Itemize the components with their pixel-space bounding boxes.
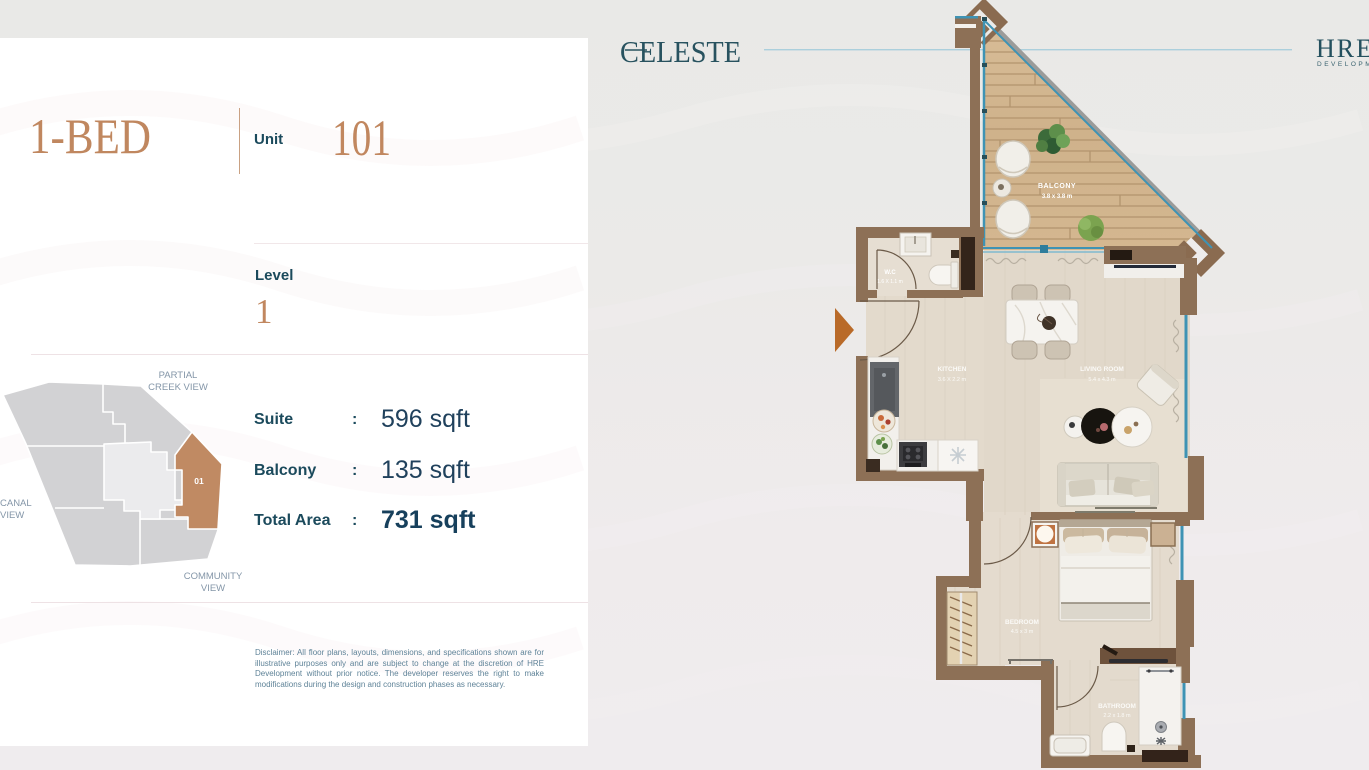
- svg-text:KITCHEN: KITCHEN: [938, 366, 967, 373]
- svg-text:5.4 x 4.3 m: 5.4 x 4.3 m: [1088, 377, 1116, 383]
- svg-text:3.6 X 2.2 m: 3.6 X 2.2 m: [938, 377, 967, 383]
- svg-text:BALCONY: BALCONY: [1038, 183, 1076, 190]
- svg-text:LIVING ROOM: LIVING ROOM: [1080, 366, 1124, 373]
- svg-text:2.2 x 1.8 m: 2.2 x 1.8 m: [1103, 713, 1131, 719]
- svg-text:3.8 x 3.8 m: 3.8 x 3.8 m: [1042, 194, 1072, 200]
- svg-text:4.5 x 3 m: 4.5 x 3 m: [1011, 629, 1034, 635]
- svg-text:BEDROOM: BEDROOM: [1005, 619, 1039, 626]
- svg-text:W.C: W.C: [884, 270, 896, 276]
- svg-text:BATHROOM: BATHROOM: [1098, 703, 1136, 710]
- svg-text:1.6 X 1.1 m: 1.6 X 1.1 m: [877, 279, 903, 285]
